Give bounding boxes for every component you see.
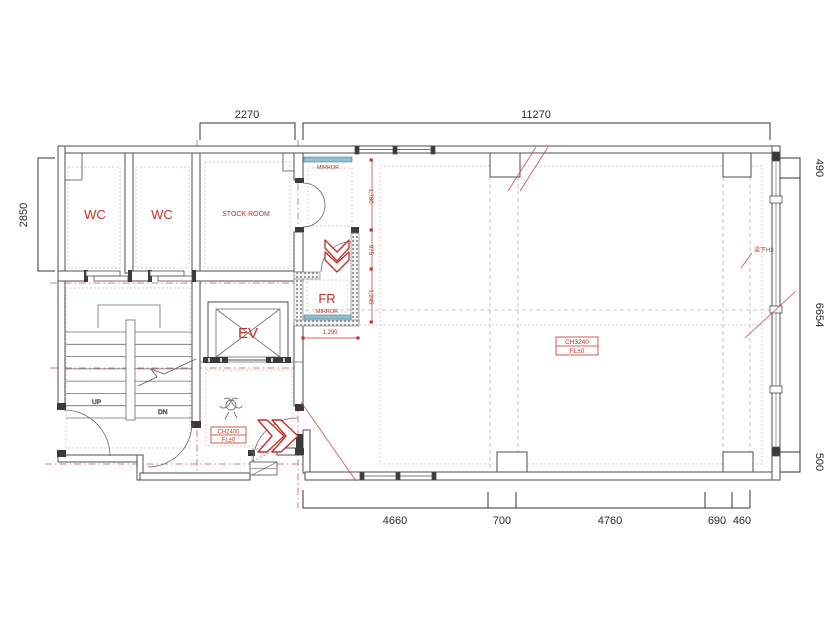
- elevator: EV: [200, 302, 303, 363]
- fitting-room-mirror: [304, 315, 351, 319]
- floor-plan-page: UP DN EV FR MIRROR MIRROR WC WC STOCK RO…: [0, 0, 840, 630]
- vestibule-mirror-label: MIRROR: [317, 165, 339, 171]
- dimension-label: 700: [493, 515, 511, 527]
- dimension-label: 1,245: [367, 289, 373, 305]
- dimension-label: 975: [367, 245, 373, 256]
- entrance-fl-value: FL±0: [222, 438, 236, 444]
- elevator-sill: [266, 357, 291, 363]
- dimension-label: 500: [813, 453, 825, 471]
- elevator-sill: [203, 357, 228, 363]
- beam-height-note: 梁下H3: [754, 246, 774, 254]
- elevator-label: EV: [238, 325, 258, 342]
- column-gridlines: [305, 156, 770, 470]
- overall-dimensions: [38, 123, 800, 508]
- figure-icon: [220, 398, 242, 419]
- entrance-height-tag: CH2400 FL±0: [211, 427, 246, 444]
- windows: [355, 146, 782, 480]
- room-label-wc1: WC: [84, 207, 106, 222]
- room-label-stock: STOCK ROOM: [222, 211, 270, 218]
- fitting-entry-arrow-icon: [325, 240, 349, 272]
- hall-fl-value: FL±0: [570, 348, 585, 355]
- pilaster: [723, 153, 751, 177]
- stair-down-label: DN: [158, 409, 168, 416]
- stair-up-label: UP: [92, 399, 101, 406]
- entrance: CH2400 FL±0: [211, 398, 298, 475]
- pilaster: [490, 153, 520, 177]
- hall-height-tag: CH3240 FL±0: [556, 337, 598, 355]
- dimension-label: 2270: [235, 109, 259, 121]
- floor-plan-canvas: UP DN EV FR MIRROR MIRROR WC WC STOCK RO…: [0, 0, 840, 630]
- dimension-label: 11270: [521, 109, 551, 121]
- pilaster: [723, 452, 753, 472]
- dimension-label: 4760: [598, 515, 622, 527]
- staircase: UP DN: [66, 305, 196, 420]
- dimension-label: 2850: [18, 203, 30, 227]
- vestibule-mirror: MIRROR: [304, 157, 352, 171]
- dimension-label: 690: [708, 515, 726, 527]
- exterior-walls: [58, 146, 780, 480]
- dimension-label: 460: [733, 515, 751, 527]
- dimension-label: 1,290: [322, 330, 338, 336]
- dimension-label: 1,780: [367, 188, 373, 204]
- fitting-room-mirror-label: MIRROR: [316, 309, 338, 315]
- fitting-room-label: FR: [318, 291, 335, 306]
- wall-notches: [65, 153, 294, 180]
- room-label-wc2: WC: [151, 207, 173, 222]
- dimension-label: 6654: [813, 303, 825, 327]
- dimension-label: 4660: [383, 515, 407, 527]
- red-annotation-lines: [301, 147, 796, 481]
- entrance-ch-value: CH2400: [217, 430, 240, 436]
- pilaster: [497, 452, 527, 472]
- dimension-label: 490: [813, 159, 825, 177]
- hall-ch-value: CH3240: [565, 339, 589, 346]
